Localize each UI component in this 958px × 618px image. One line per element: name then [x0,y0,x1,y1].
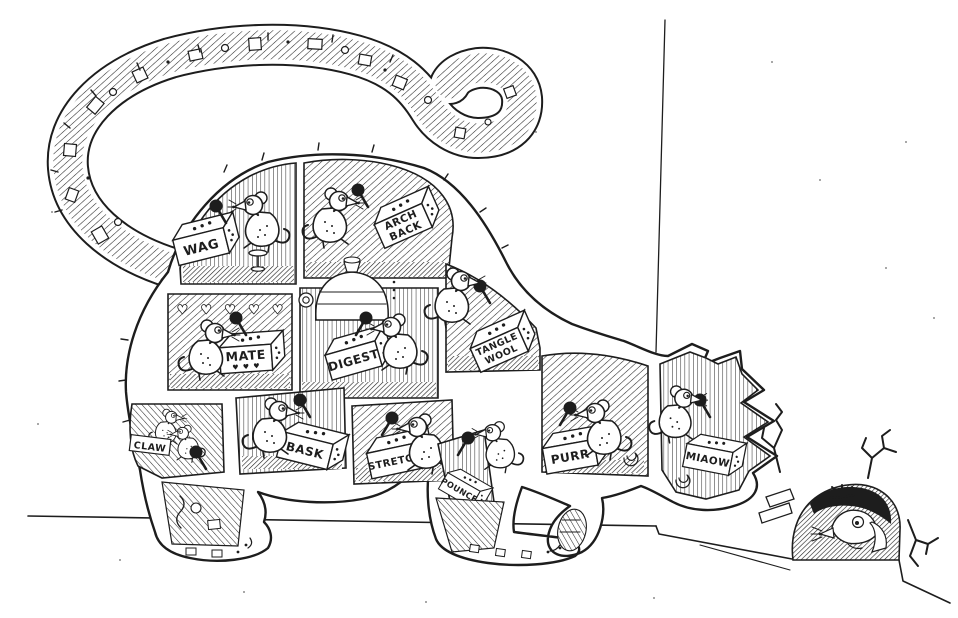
cartoon-illustration: WAG ARCH BACK ♥ ♥ ♥ ♥ ♥ MATE [0,0,958,618]
room-mate: ♥ ♥ ♥ ♥ ♥ MATE ♥ ♥ ♥ [168,294,292,390]
room-stretch: STRETCH [352,400,454,484]
wall-corner-line [656,20,665,352]
mouse-hole [759,404,938,566]
room-purr: PURR [540,353,648,476]
cat-machine-cartoon: WAG ARCH BACK ♥ ♥ ♥ ♥ ♥ MATE [0,0,958,618]
room-claw: CLAW [129,404,224,478]
skirting-board-end [759,503,792,523]
room-bask: BASK [236,388,349,474]
